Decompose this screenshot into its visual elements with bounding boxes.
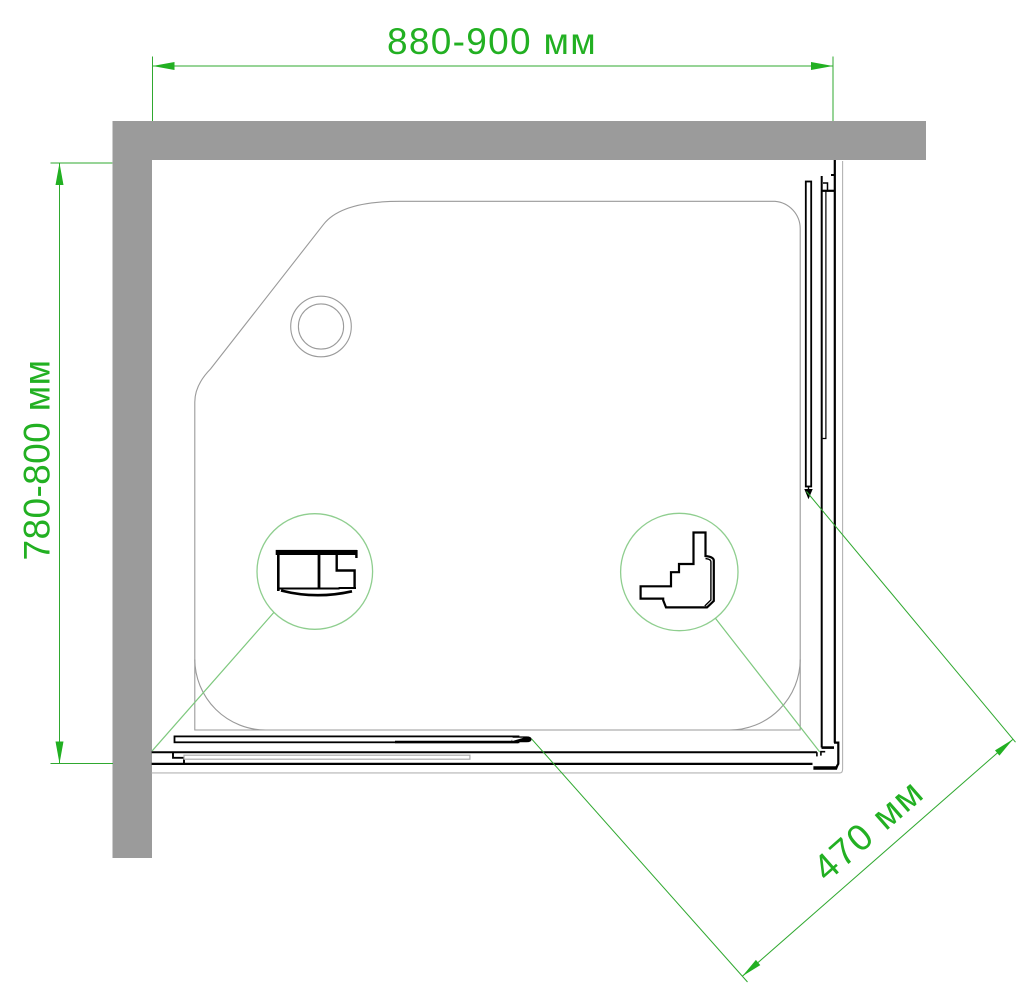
svg-text:470 мм: 470 мм — [805, 771, 931, 889]
svg-text:780-800 мм: 780-800 мм — [17, 360, 58, 561]
svg-text:880-900 мм: 880-900 мм — [387, 21, 597, 62]
